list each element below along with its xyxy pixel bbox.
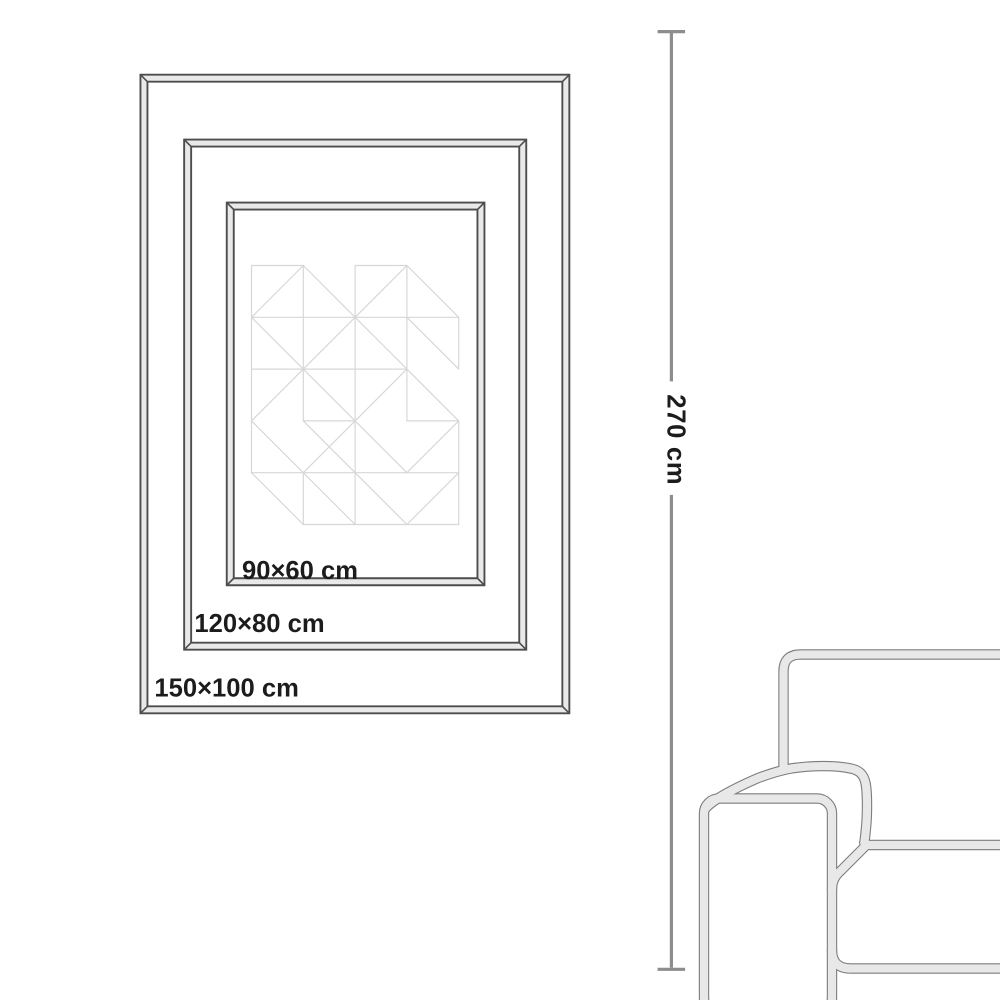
svg-text:90×60 cm: 90×60 cm (242, 557, 358, 585)
svg-text:120×80 cm: 120×80 cm (194, 610, 324, 638)
svg-text:270 cm: 270 cm (661, 394, 689, 485)
svg-text:150×100 cm: 150×100 cm (154, 675, 298, 703)
